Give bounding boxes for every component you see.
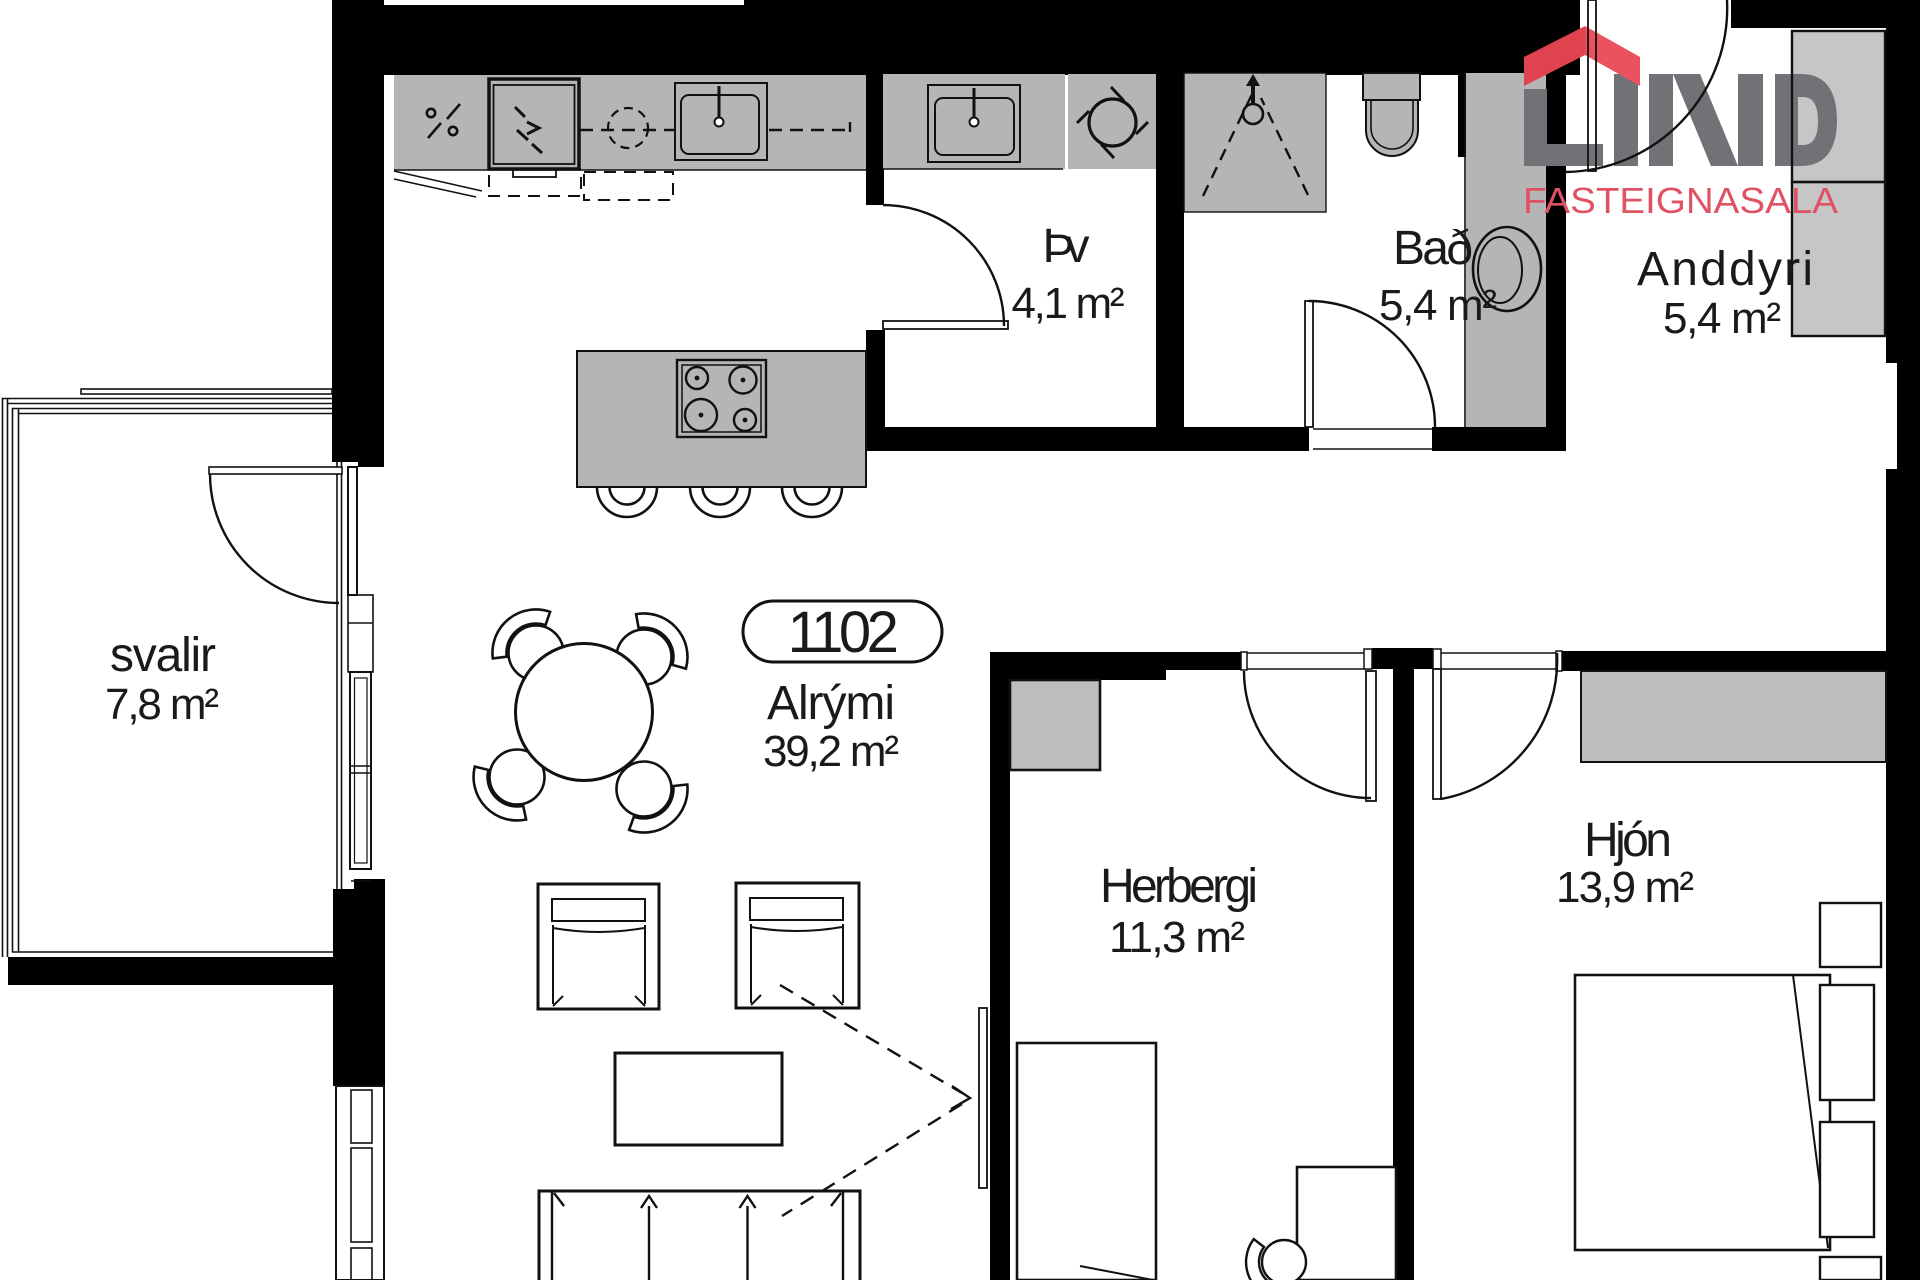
svg-text:5,4 m²: 5,4 m² [1663,294,1781,343]
svg-text:Herbergi: Herbergi [1100,860,1258,913]
svg-text:Hjón: Hjón [1584,814,1672,867]
svg-text:4,1 m²: 4,1 m² [1012,279,1125,328]
svg-text:svalir: svalir [110,629,216,682]
svg-text:13,9 m²: 13,9 m² [1556,863,1694,912]
svg-text:7,8 m²: 7,8 m² [105,680,219,729]
svg-text:Anddyri: Anddyri [1637,243,1813,296]
svg-text:Bað: Bað [1393,222,1473,275]
svg-text:5,4 m²: 5,4 m² [1379,281,1497,330]
svg-text:11,3 m²: 11,3 m² [1109,913,1245,962]
svg-text:39,2 m²: 39,2 m² [763,727,899,776]
svg-text:FASTEIGNASALA: FASTEIGNASALA [1523,180,1838,221]
svg-text:Alrými: Alrými [767,677,895,730]
svg-text:Þv: Þv [1043,220,1090,273]
svg-text:1102: 1102 [788,600,897,665]
